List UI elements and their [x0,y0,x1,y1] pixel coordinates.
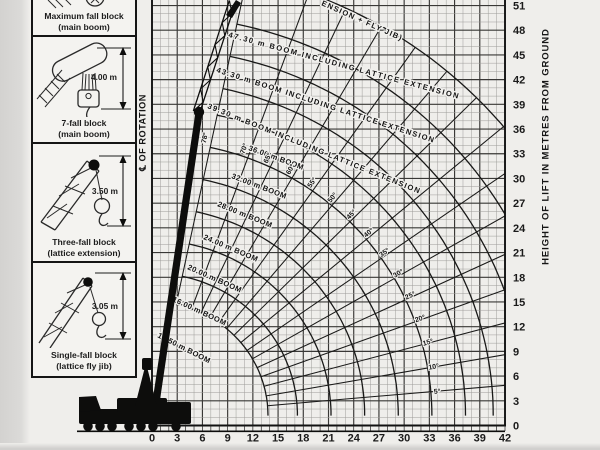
y-tick-label: 0 [513,421,519,433]
y-tick-label: 3 [513,396,519,408]
scanned-crane-range-page: Maximum fall block (main boom) 4.00 m 7-… [0,0,600,450]
lattice-chord [193,0,229,111]
wheel [124,422,134,432]
boom-angle-label: 25° [404,290,417,302]
wheel [107,422,117,432]
y-tick-label: 42 [513,75,525,87]
y-tick-label: 39 [513,99,525,111]
boom-length-curve [189,244,331,416]
boom-angle-label: 70° [239,142,250,155]
y-tick-label: 6 [513,371,519,383]
y-tick-label: 33 [513,149,525,161]
y-tick-label: 30 [513,173,525,185]
boom-curve-label: 20.00 m BOOM [186,263,243,295]
boom-angle-label: 5° [434,387,442,396]
boom-angle-label: 15° [422,337,434,348]
y-tick-label: 9 [513,346,519,358]
y-tick-label: 15 [513,297,525,309]
boom-angle-label: 20° [414,313,427,324]
driver-cab [79,396,101,412]
boom-length-curve [182,276,297,415]
boom-angle-label: 78° [200,132,210,144]
boom-curve-label: 28.00 m BOOM [216,200,274,230]
mast-head [142,358,152,370]
counterweight [166,402,191,423]
wheel [95,422,105,432]
boom-length-curve [210,147,432,415]
y-tick-label: 45 [513,50,525,62]
boom-curve-label: 32.00 m BOOM [230,171,288,200]
y-axis-title: HEIGHT OF LIFT IN METRES FROM GROUND [541,17,552,277]
boom-foot [149,405,160,421]
boom-angle-line [176,0,247,304]
wheel [136,422,146,432]
y-tick-label: 36 [513,124,525,136]
y-tick-label: 12 [513,322,525,334]
working-range-chart: 12.50 m BOOM16.00 m BOOM20.00 m BOOM24.0… [0,0,600,450]
scan-bottom-margin [0,443,600,450]
y-tick-label: 48 [513,25,525,37]
wheel [83,422,93,432]
wheel [171,422,181,432]
boom-curve-label: 36.00 m BOOM [247,143,305,171]
boom-head-sheave [194,107,204,117]
y-tick-label: 51 [513,1,525,13]
y-tick-label: 18 [513,272,525,284]
y-tick-label: 27 [513,198,525,210]
boom-curve-label: 47.30 m BOOM INCLUDING LATTICE EXTENSION [227,30,461,101]
y-tick-label: 21 [513,248,525,260]
y-tick-label: 24 [513,223,526,235]
curve-labels: 12.50 m BOOM16.00 m BOOM20.00 m BOOM24.0… [156,0,461,396]
wheel [148,422,158,432]
